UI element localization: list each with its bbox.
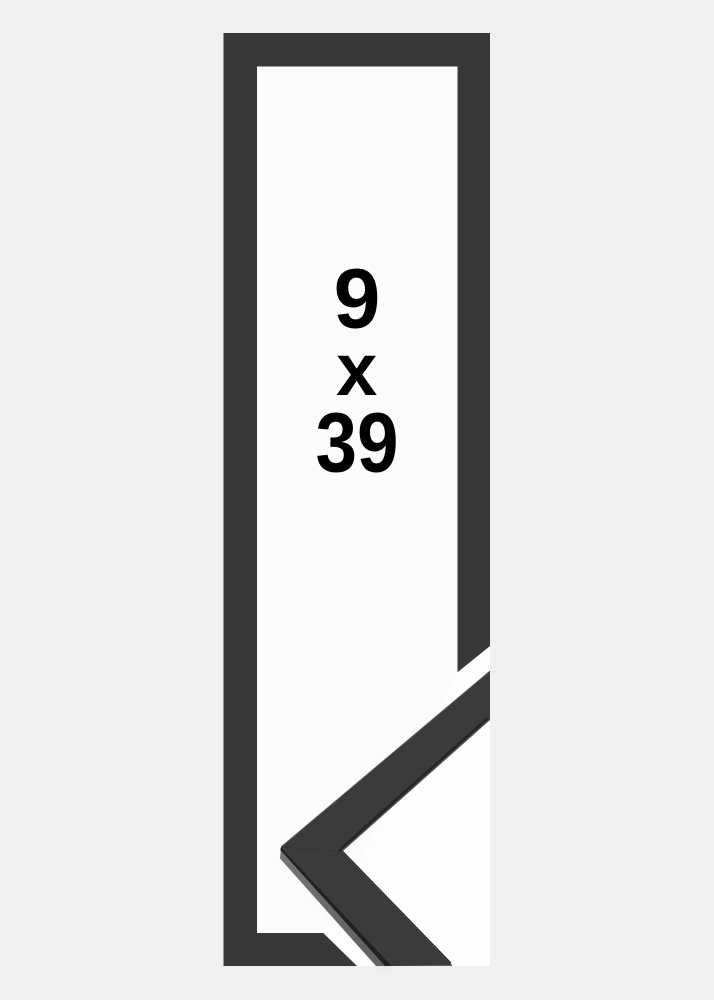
svg-text:39: 39 (316, 395, 399, 489)
